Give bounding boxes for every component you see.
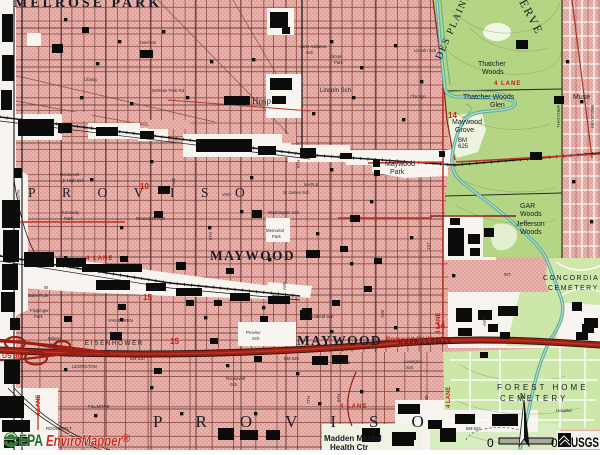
svg-text:CEMETERY: CEMETERY xyxy=(500,394,568,403)
svg-text:®: ® xyxy=(122,433,130,445)
svg-text:THATCHER: THATCHER xyxy=(556,105,561,128)
svg-text:Library: Library xyxy=(84,77,98,82)
svg-text:Harrison: Harrison xyxy=(140,40,157,45)
svg-text:AVE: AVE xyxy=(380,310,385,318)
svg-text:Muse: Muse xyxy=(573,94,590,101)
svg-text:Sch: Sch xyxy=(230,382,238,387)
svg-text:Sch: Sch xyxy=(50,342,58,347)
svg-text:CONCORDIA: CONCORDIA xyxy=(543,275,599,282)
svg-text:FILLMORE: FILLMORE xyxy=(88,404,110,409)
svg-text:Proviso: Proviso xyxy=(246,330,261,335)
svg-text:15: 15 xyxy=(170,337,179,346)
svg-text:Health Ctr: Health Ctr xyxy=(330,443,368,450)
svg-text:AVE: AVE xyxy=(282,282,287,290)
svg-text:Lincoln Sch: Lincoln Sch xyxy=(320,88,351,94)
svg-text:Lincoln Sch: Lincoln Sch xyxy=(414,48,437,53)
svg-text:FOREST HOME: FOREST HOME xyxy=(497,383,589,392)
svg-text:Roosevelt: Roosevelt xyxy=(60,172,80,177)
svg-text:5TH: 5TH xyxy=(208,232,213,240)
svg-text:PROVISO: PROVISO xyxy=(28,185,271,200)
svg-text:4 LANE: 4 LANE xyxy=(436,313,442,334)
svg-text:Hosp: Hosp xyxy=(252,96,272,106)
svg-text:0: 0 xyxy=(487,436,494,450)
svg-text:BM 630: BM 630 xyxy=(130,356,145,361)
svg-text:Flippinger: Flippinger xyxy=(30,308,49,313)
svg-text:Park: Park xyxy=(390,169,405,176)
svg-text:VAN: VAN xyxy=(222,192,231,197)
svg-text:Babe Ruth: Babe Ruth xyxy=(28,293,49,298)
svg-text:15: 15 xyxy=(143,293,152,302)
svg-text:Memorial: Memorial xyxy=(266,228,284,233)
svg-text:VAN BUREN: VAN BUREN xyxy=(108,318,133,323)
svg-text:KEYSTONE: KEYSTONE xyxy=(590,105,595,128)
svg-text:US 30: US 30 xyxy=(2,353,22,360)
svg-text:USGS: USGS xyxy=(571,434,599,450)
svg-text:4 LANE: 4 LANE xyxy=(446,387,452,408)
svg-text:Wilson: Wilson xyxy=(48,336,62,341)
svg-text:St Eulalia: St Eulalia xyxy=(332,360,351,365)
svg-text:1ST: 1ST xyxy=(426,242,431,250)
svg-text:7TH: 7TH xyxy=(306,396,311,404)
svg-text:ROOSEVELT: ROOSEVELT xyxy=(46,426,72,431)
svg-text:LEXINGTON: LEXINGTON xyxy=(72,364,97,369)
svg-text:Park: Park xyxy=(272,234,282,239)
svg-text:MELROSE PARK: MELROSE PARK xyxy=(14,0,162,11)
svg-text:Sch: Sch xyxy=(306,50,314,55)
svg-text:14: 14 xyxy=(448,111,457,120)
svg-text:Lexington: Lexington xyxy=(404,359,423,364)
svg-text:4 LANE: 4 LANE xyxy=(36,395,42,416)
svg-text:Hospital: Hospital xyxy=(556,408,572,413)
svg-text:Park: Park xyxy=(334,60,344,65)
svg-text:25TH: 25TH xyxy=(16,189,21,200)
svg-text:Maywood: Maywood xyxy=(452,119,482,126)
svg-text:Sch: Sch xyxy=(252,336,260,341)
svg-text:BM 620: BM 620 xyxy=(284,356,299,361)
svg-text:EnviroMapper: EnviroMapper xyxy=(46,433,123,450)
svg-text:AVE: AVE xyxy=(171,178,176,186)
svg-text:EISENHOWER: EISENHOWER xyxy=(85,341,144,347)
svg-text:9TH: 9TH xyxy=(296,160,301,168)
svg-text:Maywood: Maywood xyxy=(385,161,415,168)
svg-text:Chicago: Chicago xyxy=(410,94,426,99)
svg-text:Roosevelt Rd W: Roosevelt Rd W xyxy=(386,337,432,343)
svg-text:Thatcher Woods: Thatcher Woods xyxy=(463,94,515,101)
svg-text:WT.: WT. xyxy=(504,272,511,277)
svg-text:WASHINGTON: WASHINGTON xyxy=(136,216,165,221)
svg-text:CEMETERY: CEMETERY xyxy=(548,285,599,292)
svg-text:Roosevelt: Roosevelt xyxy=(226,376,246,381)
svg-text:5TH: 5TH xyxy=(336,394,341,402)
svg-text:10: 10 xyxy=(140,182,149,191)
svg-text:MAYWOOD: MAYWOOD xyxy=(297,333,382,348)
svg-text:4 LANE: 4 LANE xyxy=(494,81,521,87)
svg-text:Jefferson: Jefferson xyxy=(516,221,545,228)
svg-text:Sch: Sch xyxy=(406,365,414,370)
svg-text:St James Sch: St James Sch xyxy=(283,190,310,195)
svg-text:Jr High Sch: Jr High Sch xyxy=(62,178,85,183)
svg-text:30: 30 xyxy=(424,395,429,400)
svg-text:Park: Park xyxy=(34,314,44,319)
svg-text:Madden Mental: Madden Mental xyxy=(324,434,382,443)
svg-text:GAR: GAR xyxy=(520,203,535,210)
svg-text:Woods: Woods xyxy=(520,211,542,218)
svg-text:Jane Addams: Jane Addams xyxy=(300,44,326,49)
svg-text:Park: Park xyxy=(150,287,160,292)
svg-text:N: N xyxy=(520,392,526,401)
svg-text:4 LANE: 4 LANE xyxy=(340,404,367,410)
svg-text:Thatcher: Thatcher xyxy=(478,61,506,68)
svg-text:Gitsan: Gitsan xyxy=(330,54,343,59)
svg-text:Woods: Woods xyxy=(482,69,504,76)
svg-text:Kennedy: Kennedy xyxy=(62,210,80,215)
svg-text:AVE: AVE xyxy=(482,318,487,326)
svg-text:EPA: EPA xyxy=(19,431,43,450)
svg-text:0: 0 xyxy=(551,436,558,450)
svg-text:BM 622: BM 622 xyxy=(466,426,481,431)
svg-text:Park: Park xyxy=(64,216,74,221)
svg-text:4 LANE: 4 LANE xyxy=(86,256,113,262)
svg-text:Woods: Woods xyxy=(520,229,542,236)
svg-text:MAYWOOD: MAYWOOD xyxy=(210,248,295,263)
svg-text:PROVISO: PROVISO xyxy=(153,412,457,431)
svg-text:Melrose Park Rd: Melrose Park Rd xyxy=(152,88,185,93)
svg-text:Washington Sch: Washington Sch xyxy=(268,210,300,215)
svg-text:MAPLE: MAPLE xyxy=(304,182,319,187)
svg-text:Glen: Glen xyxy=(490,102,505,109)
svg-text:Grove: Grove xyxy=(455,127,474,134)
svg-text:Garfield Sch: Garfield Sch xyxy=(310,314,334,319)
svg-text:625: 625 xyxy=(458,144,469,150)
